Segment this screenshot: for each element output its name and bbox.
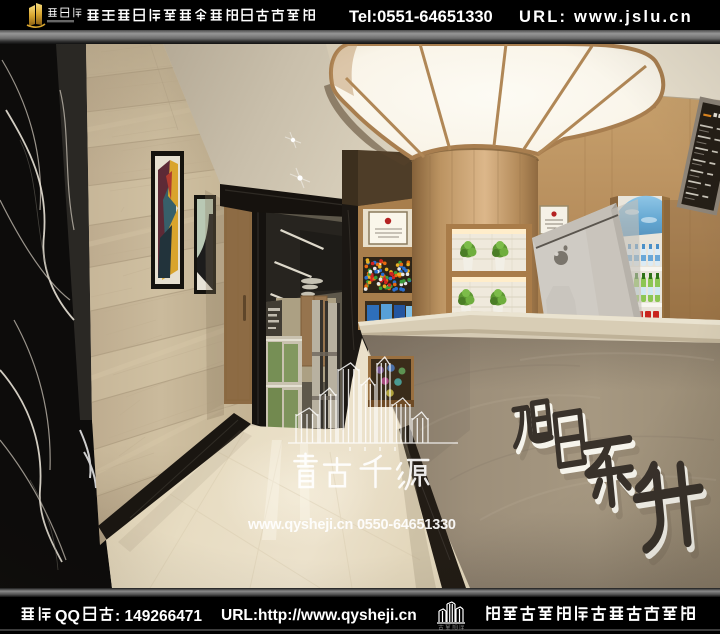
- svg-text:URL:http://www.qysheji.cn: URL:http://www.qysheji.cn: [221, 607, 417, 624]
- svg-text:Tel:0551-64651330: Tel:0551-64651330: [349, 8, 493, 26]
- svg-text:URL: www.jslu.cn: URL: www.jslu.cn: [519, 8, 693, 26]
- svg-text:QQ: QQ: [55, 608, 80, 625]
- svg-text:: 149266471: : 149266471: [115, 608, 202, 625]
